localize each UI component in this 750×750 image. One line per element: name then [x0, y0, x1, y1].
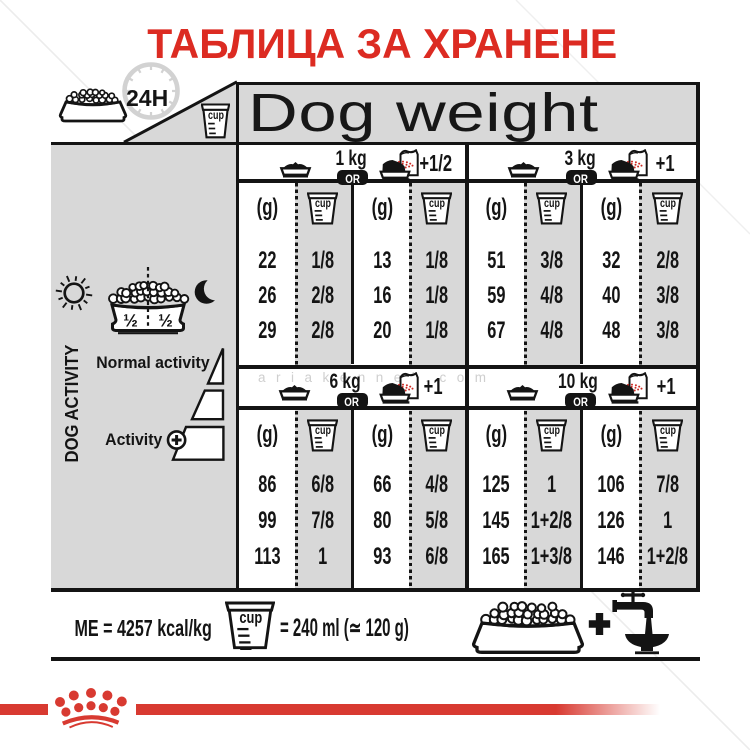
svg-text:cup: cup — [429, 198, 445, 210]
svg-text:cup: cup — [208, 110, 224, 122]
svg-text:cup: cup — [315, 425, 331, 437]
svg-text:cup: cup — [660, 198, 676, 210]
svg-text:cup: cup — [315, 198, 331, 210]
svg-text:cup: cup — [544, 198, 560, 210]
svg-text:½: ½ — [158, 311, 173, 331]
svg-text:cup: cup — [429, 425, 445, 437]
svg-text:cup: cup — [660, 425, 676, 437]
svg-text:cup: cup — [544, 425, 560, 437]
svg-text:½: ½ — [123, 311, 138, 331]
